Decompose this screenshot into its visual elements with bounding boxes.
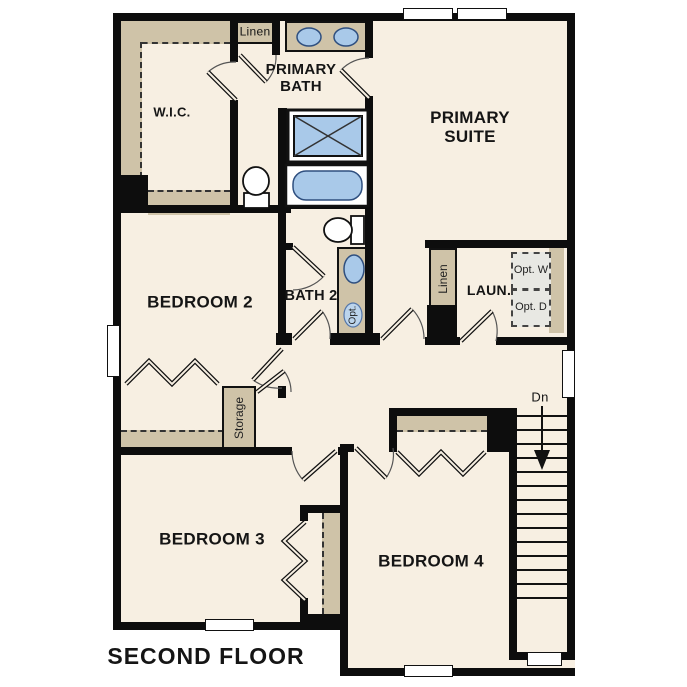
wall-corner-block: [113, 175, 148, 213]
wall-bedroom3-top: [113, 447, 292, 455]
window-top-2: [457, 8, 507, 20]
label-floor-title: SECOND FLOOR: [107, 644, 304, 670]
wall-outer-bottom-right: [340, 668, 575, 676]
label-primary-suite: PRIMARY SUITE: [405, 108, 535, 146]
wall-b3closet-bottom: [300, 614, 340, 622]
window-bedroom3: [205, 619, 254, 631]
optional-dryer-label: Opt. D: [515, 301, 547, 315]
wall-outer-step: [340, 622, 348, 676]
wall-laundry-block: [427, 305, 457, 345]
wic-shelf-top: [121, 21, 230, 44]
label-linen-hall: Linen: [240, 25, 271, 38]
window-bedroom4: [404, 665, 453, 677]
wall-bedroom4-top-stub: [340, 444, 354, 452]
label-bedroom4: BEDROOM 4: [378, 551, 484, 570]
label-wic: W.I.C.: [153, 106, 190, 121]
label-linen-laundry: Linen: [436, 264, 450, 293]
label-storage: Storage: [232, 397, 246, 439]
wall-tub-toilet-divider: [283, 201, 373, 209]
label-bedroom3: BEDROOM 3: [159, 529, 265, 548]
wall-stairs-left: [509, 408, 517, 660]
wall-outer-left: [113, 13, 121, 630]
wall-wic-right-upper: [230, 21, 238, 62]
label-primary-bath: PRIMARY BATH: [246, 62, 356, 96]
wall-bath2-bottom-b: [330, 333, 380, 345]
bedroom3-closet-shelf: [322, 513, 342, 614]
wall-b3closet-front-upper: [300, 505, 308, 521]
wall-shower-tub-divider: [278, 158, 373, 166]
wall-wic-right-lower: [230, 100, 238, 213]
label-dn: Dn: [531, 391, 548, 406]
window-left-bedroom2: [107, 325, 120, 377]
optional-washer-label: Opt. W: [514, 264, 548, 278]
window-top-1: [403, 8, 453, 20]
stair-treads: [517, 415, 567, 603]
optional-washer-box: Opt. W: [511, 252, 551, 290]
laundry-side-shelf: [549, 248, 564, 333]
label-laundry: LAUN.: [467, 283, 511, 299]
wic-shelf-left: [121, 42, 142, 178]
wall-suite-left-upper: [365, 13, 373, 58]
primary-vanity-counter: [285, 21, 369, 52]
label-opt-sink: Opt.: [348, 306, 359, 325]
wall-bedroom2-right-stub: [278, 386, 286, 398]
label-bedroom2: BEDROOM 2: [147, 292, 253, 311]
wall-laundry-bottom-b: [496, 337, 575, 345]
wall-bedroom2-right: [278, 213, 286, 338]
wall-bath2-bottom-a: [276, 333, 292, 345]
wall-laundry-top: [425, 240, 575, 248]
wall-linen-right: [272, 21, 280, 55]
wall-suite-left-lower: [365, 96, 373, 340]
window-right-stair-landing: [562, 350, 575, 398]
label-bath2: BATH 2: [284, 288, 338, 304]
window-stairwell: [527, 652, 562, 666]
optional-dryer-box: Opt. D: [511, 289, 551, 327]
wall-bedroom34-divider: [340, 447, 348, 622]
floor-plan: Opt. W Opt. D: [0, 0, 687, 687]
